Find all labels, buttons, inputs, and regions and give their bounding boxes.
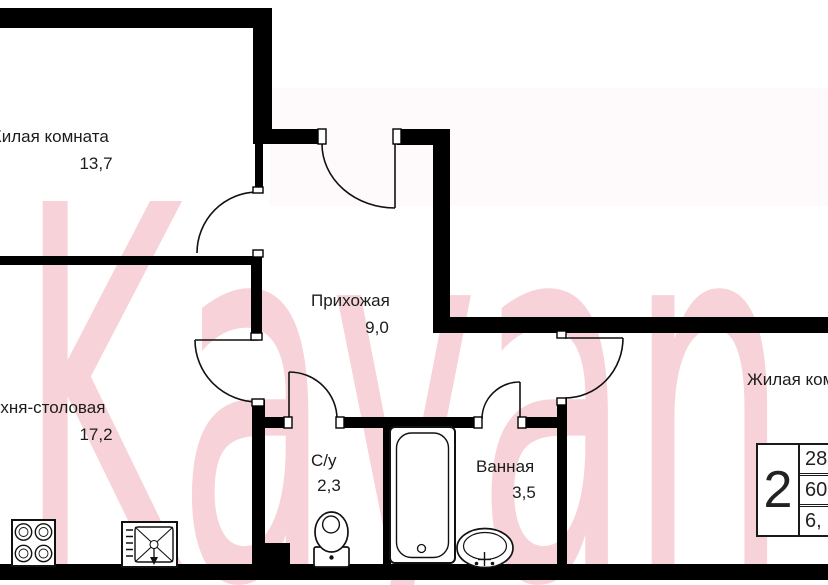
door-jambs: [251, 129, 566, 428]
jamb: [253, 187, 263, 193]
room-area-wc: 2,3: [299, 476, 359, 496]
door-arc-living1: [197, 192, 258, 253]
stamp-area-row: 60,: [800, 475, 828, 505]
jamb: [318, 129, 326, 144]
room-label-hall: Прихожая: [311, 291, 390, 311]
stamp-area-row: 28,: [800, 445, 828, 474]
jamb: [284, 417, 292, 428]
toilet-icon: [314, 512, 349, 567]
jamb: [393, 129, 401, 144]
wall-kitchen-hall-upper: [251, 256, 262, 338]
wall-living1-door-stub: [255, 144, 263, 189]
wall-hall-right: [433, 129, 450, 333]
apartment-stamp: 2 28, 60, 6,: [756, 443, 828, 537]
jamb: [251, 333, 262, 340]
room-label-living2: Жилая комната: [747, 370, 828, 390]
apartment-stamp-areas: 28, 60, 6,: [800, 445, 828, 535]
stamp-area-row: 6,: [800, 506, 828, 535]
jamb: [557, 398, 566, 405]
jamb: [474, 417, 482, 428]
kitchen-sink-icon: [122, 522, 177, 567]
wall-living1-kitchen: [0, 256, 258, 265]
room-area-hall: 9,0: [347, 318, 407, 338]
wall-long-horizontal: [433, 317, 828, 333]
stove-icon: [12, 520, 55, 566]
jamb: [253, 250, 263, 257]
room-area-kitchen: 17,2: [66, 425, 126, 445]
room-area-bath: 3,5: [494, 483, 554, 503]
room-label-living1: Жилая комната: [0, 127, 109, 147]
apartment-number: 2: [758, 445, 800, 535]
floorplan-drawing: [0, 0, 828, 585]
wall-top: [0, 8, 272, 28]
jamb: [518, 417, 526, 428]
wall-living1-right-upper: [253, 8, 272, 144]
jamb: [252, 399, 264, 406]
door-arc-kitchen: [195, 340, 258, 402]
jamb: [557, 331, 566, 338]
room-area-living1: 13,7: [66, 154, 126, 174]
door-arc-living2: [565, 338, 623, 398]
door-arc-bath: [482, 382, 520, 419]
wall-entry-left: [253, 129, 322, 144]
room-label-bath: Ванная: [476, 457, 534, 477]
room-label-kitchen: Кухня-столовая: [0, 398, 105, 418]
washbasin-icon: [457, 529, 513, 568]
wall-column: [264, 543, 290, 564]
door-arc-wc: [289, 372, 337, 419]
door-arc-entry: [322, 144, 395, 208]
bathtub-icon: [390, 427, 455, 563]
floorplan-canvas: Kayan: [0, 0, 828, 585]
room-label-wc: С/у: [311, 451, 337, 471]
wall-bath-living2: [557, 398, 567, 564]
wall-wc-top-left: [252, 417, 288, 428]
jamb: [336, 417, 344, 428]
